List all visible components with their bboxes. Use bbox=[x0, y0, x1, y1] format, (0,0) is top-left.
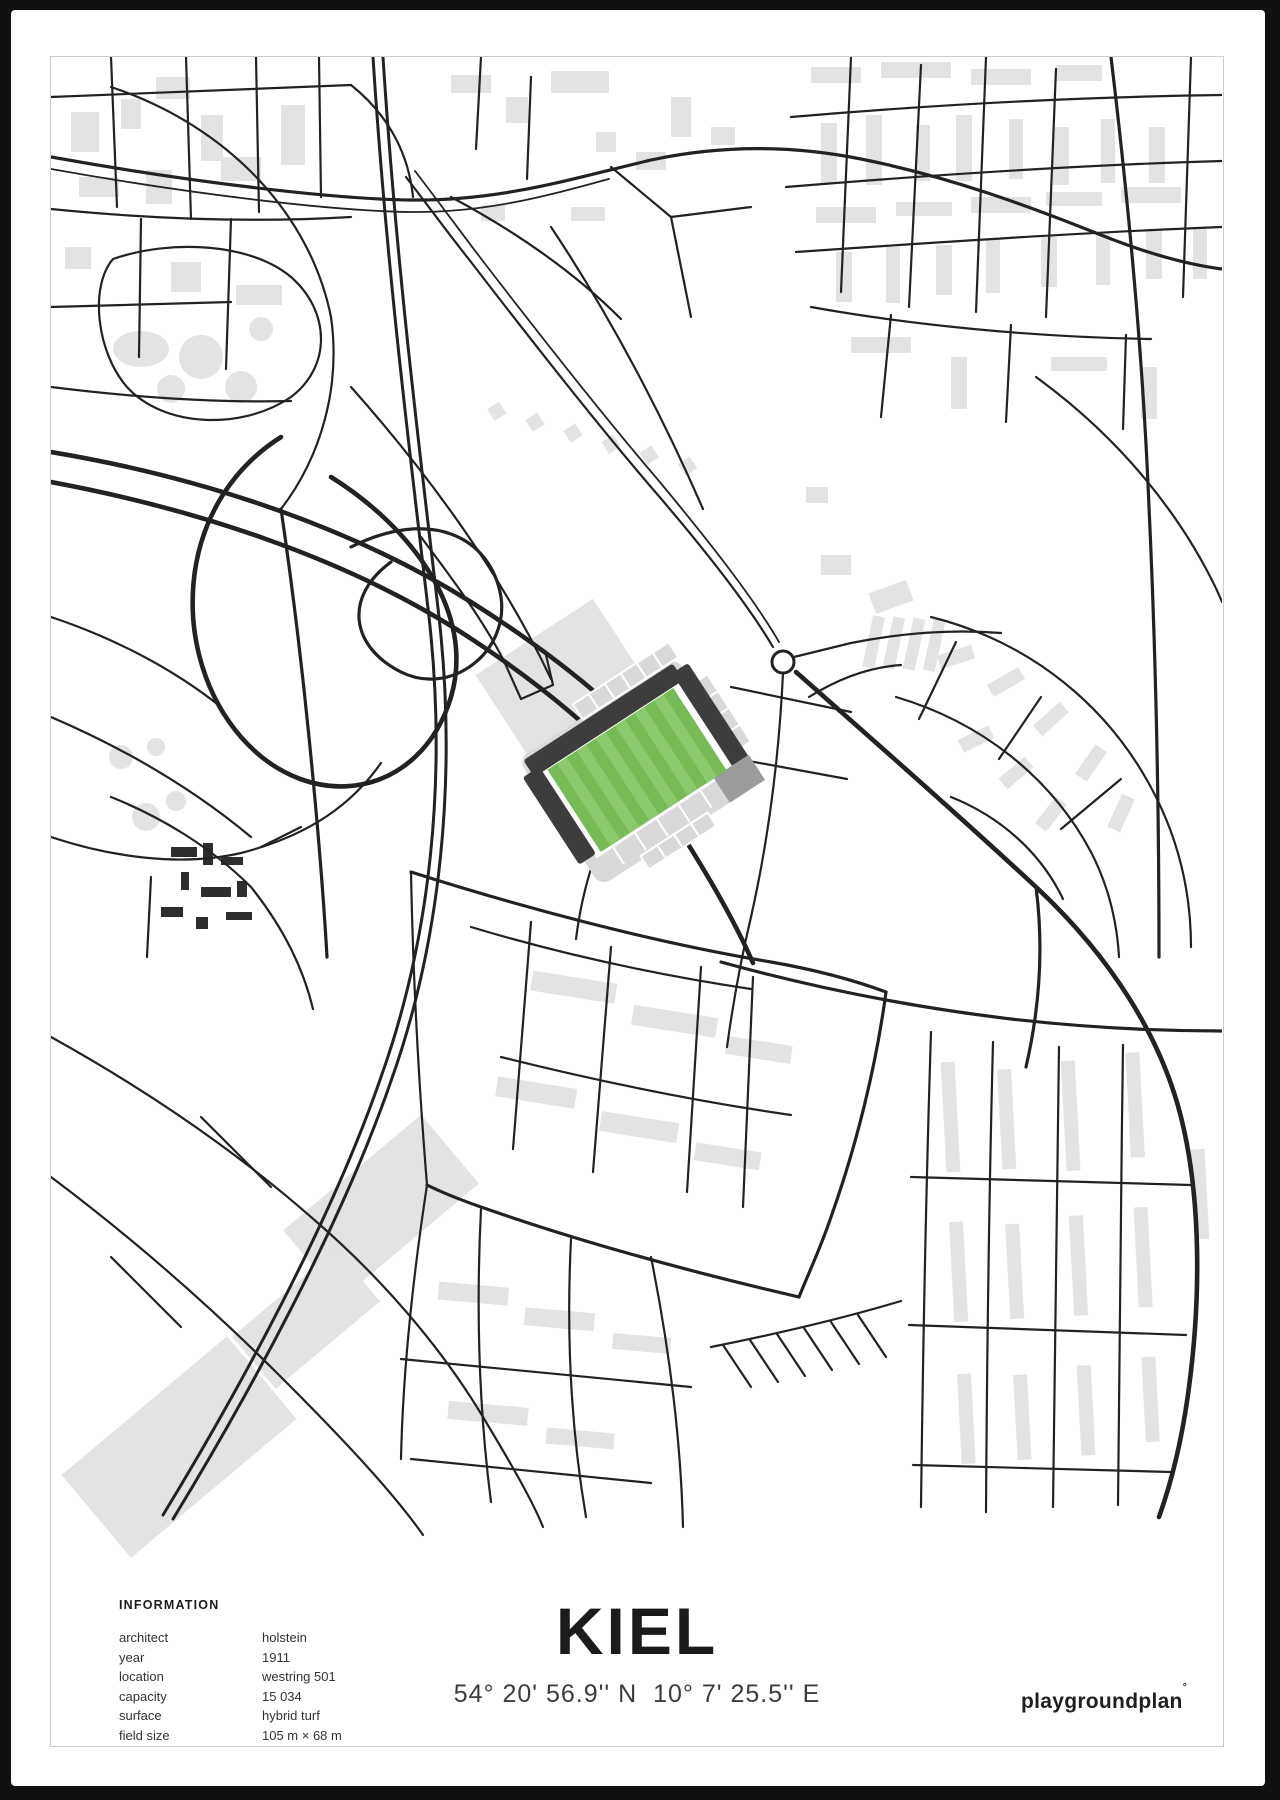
poster-footer: INFORMATION architect holstein year 1911… bbox=[51, 1570, 1223, 1746]
campus-buildings bbox=[161, 843, 252, 929]
content-frame: INFORMATION architect holstein year 1911… bbox=[50, 56, 1224, 1747]
map-svg bbox=[51, 57, 1222, 1570]
poster: INFORMATION architect holstein year 1911… bbox=[0, 0, 1280, 1800]
brand-mark: ° bbox=[1183, 1682, 1187, 1693]
roundabout-icon bbox=[772, 651, 794, 673]
info-value: 105 m × 68 m bbox=[262, 1726, 342, 1746]
info-row: field size 105 m × 68 m bbox=[119, 1726, 342, 1746]
info-label: field size bbox=[119, 1726, 262, 1746]
brand-text: playgroundplan bbox=[1021, 1690, 1183, 1713]
brand-logo: playgroundplan° bbox=[1021, 1682, 1187, 1714]
page-title: KIEL bbox=[51, 1598, 1223, 1664]
poster-page: INFORMATION architect holstein year 1911… bbox=[11, 10, 1265, 1786]
city-map bbox=[51, 57, 1222, 1570]
